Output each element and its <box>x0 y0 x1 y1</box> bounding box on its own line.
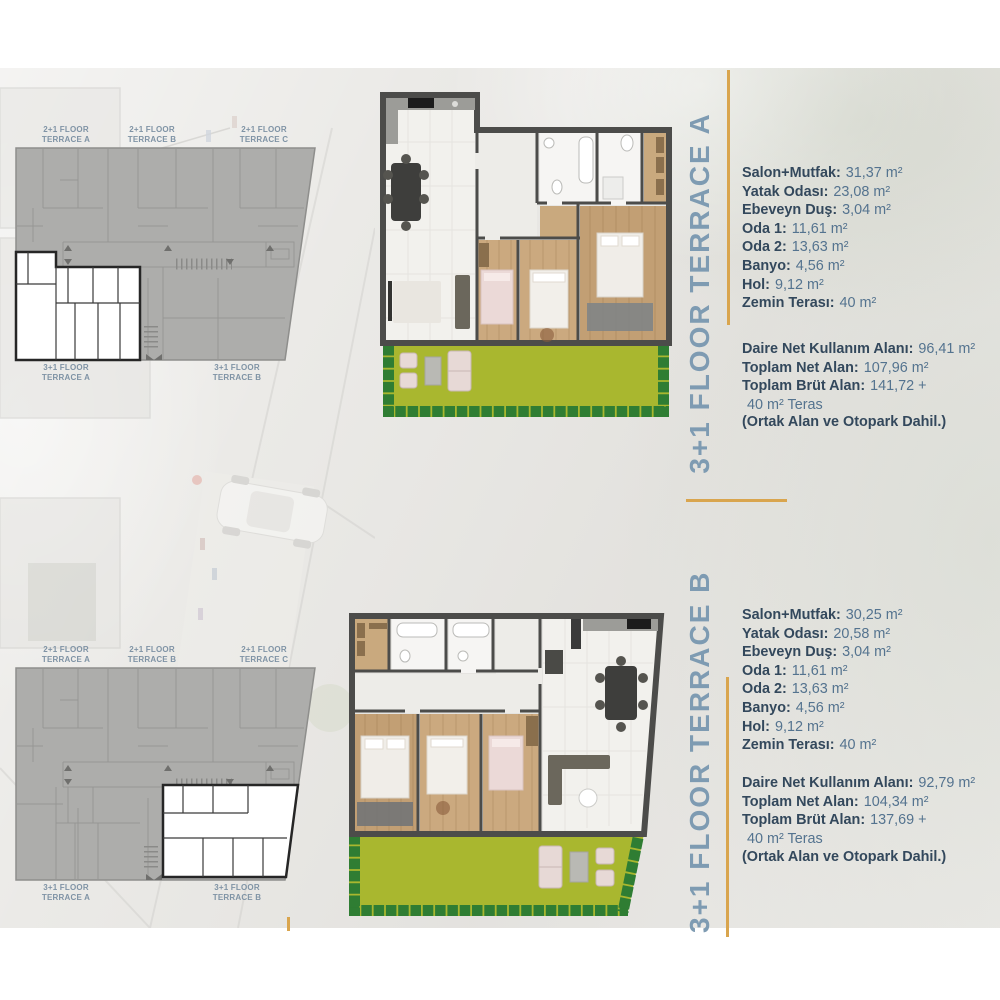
stat-row: Oda 1:11,61 m² <box>742 220 903 239</box>
kp2-label-2p1c: 2+1 FLOORTERRACE C <box>224 645 304 664</box>
garden-terrace-a <box>383 345 669 417</box>
stat-row: Banyo:4,56 m² <box>742 257 903 276</box>
brochure-page: 2+1 FLOORTERRACE A 2+1 FLOORTERRACE B 2+… <box>0 0 1000 1000</box>
garden-terrace-b <box>349 834 644 916</box>
section-b-vertical-title: 3+1 FLOOR TERRACE B <box>683 593 717 933</box>
kp1-label-2p1c: 2+1 FLOORTERRACE C <box>224 125 304 144</box>
gold-divider-horizontal <box>686 499 787 502</box>
bedroom-master <box>587 233 653 331</box>
total-row: Daire Net Kullanım Alanı:96,41 m² <box>742 340 975 359</box>
stat-row: Ebeveyn Duş:3,04 m² <box>742 201 903 220</box>
highlighted-unit-b <box>163 785 298 877</box>
bedroom-master <box>357 736 413 826</box>
stat-row: Banyo:4,56 m² <box>742 699 903 718</box>
stat-row: Yatak Odası:20,58 m² <box>742 625 903 644</box>
dining-table <box>391 163 421 221</box>
total-row: Daire Net Kullanım Alanı:92,79 m² <box>742 774 975 793</box>
kp2-label-3p1b: 3+1 FLOORTERRACE B <box>197 883 277 902</box>
total-row: 40 m² Teras <box>742 396 975 415</box>
terrace-a-room-stats: Salon+Mutfak:31,37 m² Yatak Odası:23,08 … <box>742 164 903 313</box>
stat-row: Salon+Mutfak:30,25 m² <box>742 606 903 625</box>
kp1-label-3p1b: 3+1 FLOORTERRACE B <box>197 363 277 382</box>
kp1-label-2p1b: 2+1 FLOORTERRACE B <box>112 125 192 144</box>
stat-row: Zemin Terası:40 m² <box>742 294 903 313</box>
keyplan-terrace-a <box>8 118 318 393</box>
stat-row: Hol:9,12 m² <box>742 276 903 295</box>
stat-row: Yatak Odası:23,08 m² <box>742 183 903 202</box>
stat-row: Oda 2:13,63 m² <box>742 238 903 257</box>
keyplan-terrace-b <box>8 638 318 913</box>
total-row: Toplam Brüt Alan:137,69 + <box>742 811 975 830</box>
stat-row: Zemin Terası:40 m² <box>742 736 903 755</box>
entry-cabinet <box>545 650 563 674</box>
stat-row: Hol:9,12 m² <box>742 718 903 737</box>
total-row: Toplam Brüt Alan:141,72 + <box>742 377 975 396</box>
floorplan-terrace-b <box>343 608 669 928</box>
stat-row: Salon+Mutfak:31,37 m² <box>742 164 903 183</box>
stat-row: Oda 1:11,61 m² <box>742 662 903 681</box>
kp1-label-2p1a: 2+1 FLOORTERRACE A <box>26 125 106 144</box>
kp2-label-2p1a: 2+1 FLOORTERRACE A <box>26 645 106 664</box>
terrace-b-totals: Daire Net Kullanım Alanı:92,79 m² Toplam… <box>742 774 975 848</box>
stat-row: Ebeveyn Duş:3,04 m² <box>742 643 903 662</box>
gold-tick-bottom <box>287 917 290 931</box>
terrace-b-note: (Ortak Alan ve Otopark Dahil.) <box>742 849 946 865</box>
total-row: Toplam Net Alan:104,34 m² <box>742 793 975 812</box>
dining-table <box>605 666 637 720</box>
kp2-label-2p1b: 2+1 FLOORTERRACE B <box>112 645 192 664</box>
gold-divider-vertical-b <box>726 677 729 937</box>
gold-divider-vertical-a <box>727 70 730 325</box>
terrace-a-totals: Daire Net Kullanım Alanı:96,41 m² Toplam… <box>742 340 975 414</box>
terrace-a-note: (Ortak Alan ve Otopark Dahil.) <box>742 414 946 430</box>
sofa <box>455 275 470 329</box>
entry-closet <box>656 137 664 195</box>
kp1-label-3p1a: 3+1 FLOORTERRACE A <box>26 363 106 382</box>
kp2-label-3p1a: 3+1 FLOORTERRACE A <box>26 883 106 902</box>
stat-row: Oda 2:13,63 m² <box>742 680 903 699</box>
living-rug <box>393 281 441 323</box>
rooms-floors <box>355 619 658 831</box>
round-table <box>579 789 597 807</box>
hydrant <box>192 475 202 485</box>
section-a-vertical-title: 3+1 FLOOR TERRACE A <box>683 108 717 478</box>
highlighted-unit-a <box>16 252 140 360</box>
shrub-block <box>28 563 96 641</box>
floorplan-terrace-a <box>375 85 681 433</box>
tv-unit <box>388 281 392 321</box>
terrace-b-room-stats: Salon+Mutfak:30,25 m² Yatak Odası:20,58 … <box>742 606 903 755</box>
total-row: 40 m² Teras <box>742 830 975 849</box>
total-row: Toplam Net Alan:107,96 m² <box>742 359 975 378</box>
